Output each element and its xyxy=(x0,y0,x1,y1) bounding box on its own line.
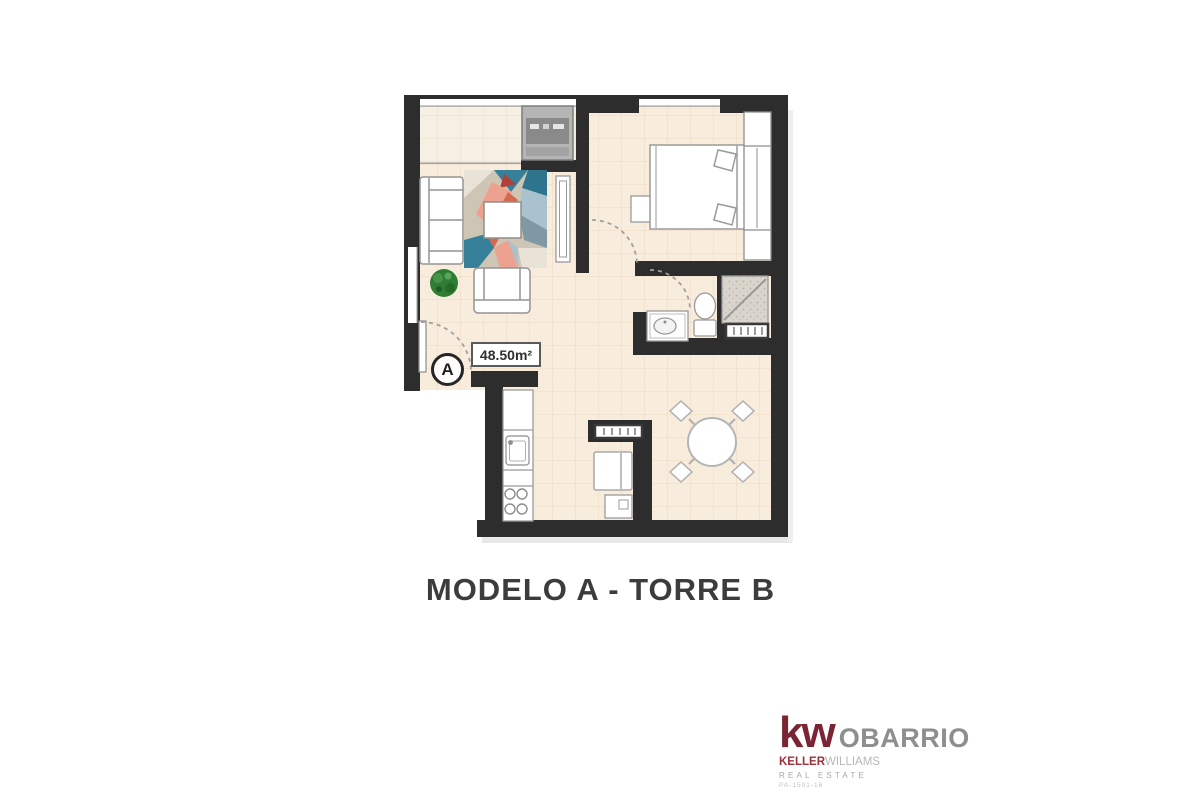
kw-logo: kw OBARRIO KELLERWILLIAMS REAL ESTATE PA… xyxy=(779,711,969,789)
toilet-icon xyxy=(694,293,716,336)
brand-first: KELLER xyxy=(779,756,825,768)
kitchen-sink xyxy=(506,436,529,465)
tv-console xyxy=(556,176,570,262)
louver-grille xyxy=(595,425,642,438)
bed xyxy=(650,145,745,229)
armchair xyxy=(474,268,530,313)
fridge xyxy=(594,452,632,490)
plant-icon xyxy=(430,269,458,297)
side-window xyxy=(404,247,418,323)
dining-table xyxy=(688,418,736,466)
brand-second: WILLIAMS xyxy=(825,756,880,768)
logo-top-row: kw OBARRIO xyxy=(779,711,969,755)
bedroom-window xyxy=(639,95,720,107)
floor-plan-drawing xyxy=(0,0,1201,800)
office-name: OBARRIO xyxy=(839,725,970,752)
entry-door xyxy=(419,321,426,372)
area-label: 48.50m² xyxy=(471,342,541,367)
floor-plan-page: 48.50m² A MODELO A - TORRE B kw OBARRIO … xyxy=(0,0,1201,800)
shower xyxy=(722,276,768,323)
ac-unit-icon xyxy=(522,106,573,160)
utility-box xyxy=(605,495,632,518)
logo-tagline: REAL ESTATE xyxy=(779,772,969,780)
closet xyxy=(744,112,771,260)
unit-marker: A xyxy=(431,353,464,386)
brand-name: KELLERWILLIAMS xyxy=(779,757,969,769)
plan-title: MODELO A - TORRE B xyxy=(0,572,1201,608)
kw-mark: kw xyxy=(779,711,834,755)
coffee-table xyxy=(484,202,521,238)
logo-license: PA-1501-16 xyxy=(779,783,969,790)
vent-grille xyxy=(726,324,768,338)
vanity-sink xyxy=(647,311,688,341)
living-window xyxy=(420,95,576,107)
sofa xyxy=(420,177,463,264)
